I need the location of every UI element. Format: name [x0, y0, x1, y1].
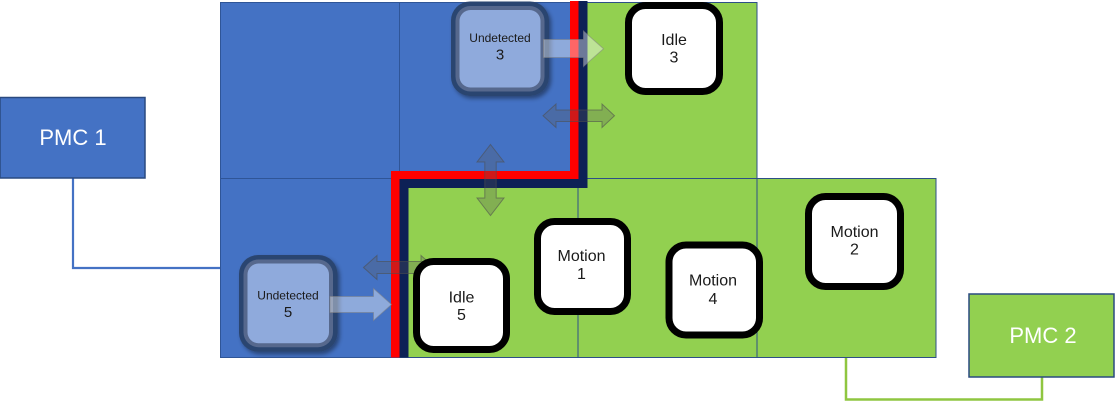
svg-text:Undetected: Undetected: [469, 31, 530, 45]
svg-text:2: 2: [850, 242, 859, 259]
svg-text:1: 1: [577, 266, 586, 283]
svg-text:PMC 1: PMC 1: [39, 125, 106, 150]
svg-text:Undetected: Undetected: [257, 289, 318, 303]
svg-text:3: 3: [670, 50, 679, 67]
svg-text:PMC 2: PMC 2: [1009, 323, 1076, 348]
svg-text:5: 5: [457, 307, 466, 324]
svg-text:Motion: Motion: [830, 224, 878, 241]
svg-text:Idle: Idle: [449, 290, 475, 307]
svg-text:5: 5: [284, 304, 292, 321]
svg-text:4: 4: [709, 291, 718, 308]
svg-text:Motion: Motion: [557, 248, 605, 265]
svg-text:3: 3: [496, 47, 504, 64]
svg-text:Idle: Idle: [661, 32, 687, 49]
svg-text:Motion: Motion: [689, 273, 737, 290]
